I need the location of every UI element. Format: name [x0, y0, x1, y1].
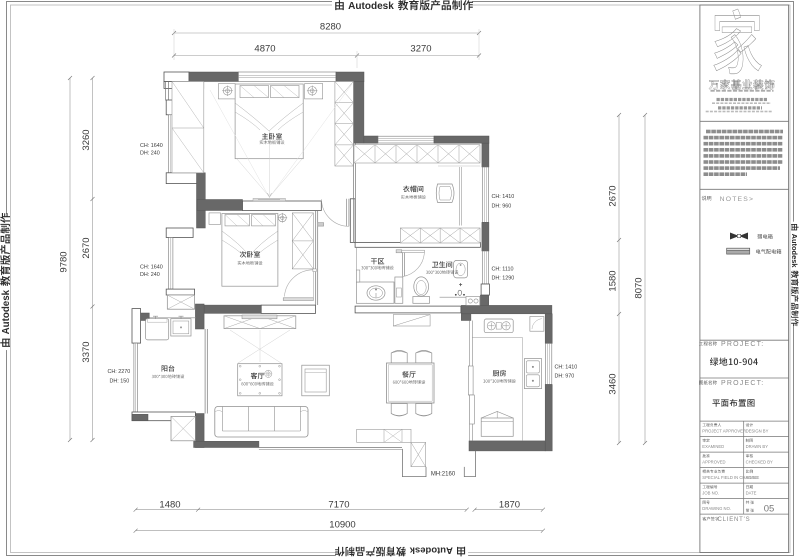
svg-text:3370: 3370: [81, 341, 92, 362]
svg-text:3270: 3270: [410, 44, 431, 55]
svg-text:Autodesk: Autodesk: [409, 545, 453, 556]
svg-text:DATE: DATE: [746, 490, 757, 495]
svg-text:1870: 1870: [499, 500, 520, 511]
svg-text:SCALE: SCALE: [746, 475, 760, 480]
svg-text:CH: 2270: CH: 2270: [108, 369, 131, 375]
svg-text:DH: 970: DH: 970: [555, 374, 575, 380]
svg-text:CH: 1410: CH: 1410: [492, 194, 515, 200]
svg-text:8280: 8280: [320, 22, 341, 33]
svg-text:3260: 3260: [81, 129, 92, 150]
svg-text:DH: 1290: DH: 1290: [492, 276, 515, 282]
svg-text:PROJECT APPROVER: PROJECT APPROVER: [702, 428, 746, 433]
svg-text:2670: 2670: [608, 185, 619, 206]
svg-text:DESIGN BY: DESIGN BY: [746, 428, 769, 433]
svg-text:CLIENT'S: CLIENT'S: [718, 517, 751, 523]
svg-text:10900: 10900: [329, 520, 355, 531]
svg-text:CH: 1640: CH: 1640: [140, 143, 163, 149]
svg-text:DRAWN BY: DRAWN BY: [746, 444, 769, 449]
svg-text:8070: 8070: [634, 277, 645, 298]
svg-text:1480: 1480: [159, 500, 180, 511]
svg-text:05: 05: [764, 504, 775, 515]
svg-text:MH:2160: MH:2160: [431, 472, 456, 478]
svg-text:CHECKED BY: CHECKED BY: [746, 459, 773, 464]
svg-text:Autodesk: Autodesk: [1, 289, 12, 334]
svg-text:PROJECT:: PROJECT:: [721, 341, 764, 348]
svg-text:CH: 1110: CH: 1110: [492, 267, 514, 273]
svg-text:1580: 1580: [608, 270, 619, 291]
svg-text:APPROVED: APPROVED: [702, 459, 725, 464]
svg-text:Autodesk: Autodesk: [348, 1, 394, 12]
svg-text:CH: 1410: CH: 1410: [555, 365, 578, 371]
svg-text:4870: 4870: [254, 44, 275, 55]
svg-text:DH: 150: DH: 150: [110, 379, 130, 385]
svg-text:Autodesk: Autodesk: [790, 234, 799, 269]
svg-text:DRAWING NO.: DRAWING NO.: [702, 506, 731, 511]
svg-text:DH: 240: DH: 240: [140, 272, 160, 278]
svg-text:DH: 960: DH: 960: [492, 204, 512, 210]
svg-text:PROJECT:: PROJECT:: [721, 380, 764, 387]
svg-text:JOB NO.: JOB NO.: [702, 490, 719, 495]
svg-text:9780: 9780: [59, 251, 70, 272]
svg-text:7170: 7170: [328, 500, 349, 511]
svg-text:3460: 3460: [608, 373, 619, 394]
svg-text:CH: 1640: CH: 1640: [140, 265, 163, 271]
svg-text:2670: 2670: [81, 237, 92, 258]
svg-text:NOTES>: NOTES>: [720, 196, 755, 203]
svg-text:EXAMINED: EXAMINED: [702, 444, 724, 449]
svg-text:DH: 240: DH: 240: [140, 151, 160, 157]
